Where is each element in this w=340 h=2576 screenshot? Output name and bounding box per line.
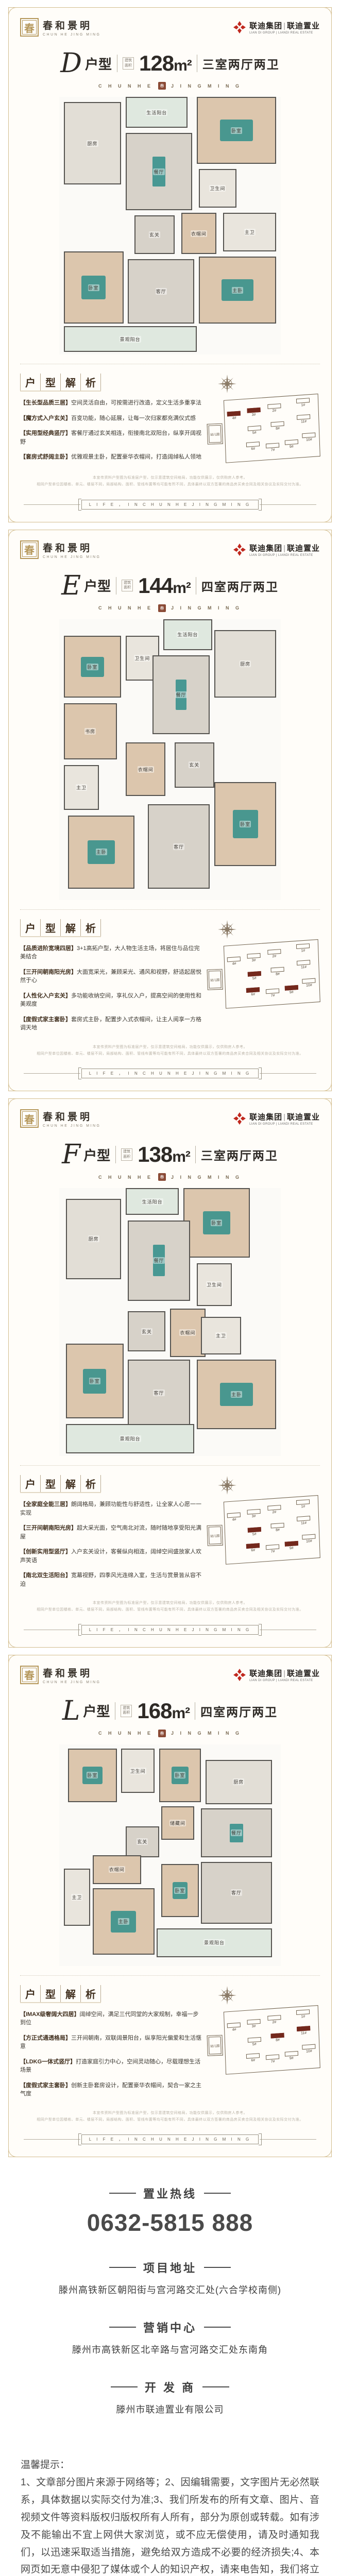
building-footprint xyxy=(227,411,241,416)
room-label: 餐厅 xyxy=(153,168,164,175)
analysis-title-char: 户 xyxy=(20,374,41,391)
building-footprint xyxy=(266,2054,279,2060)
floorplan-room: 玄关 xyxy=(128,1311,165,1351)
building-number: 6# xyxy=(251,2059,255,2063)
disclaimer-line: 本宣传资料户型图为标准层户型，仅示意建筑空间格局，功能仅供展示，仅供购房人参考。 xyxy=(20,1044,320,1050)
siteplan-building: 10# xyxy=(302,2044,316,2054)
building-number: 11# xyxy=(301,2031,307,2036)
floorplan-room: 储藏间 xyxy=(161,1806,195,1840)
floorplan-room: 主卧 xyxy=(93,1888,155,1955)
building-footprint xyxy=(246,1543,260,1549)
analysis-bullet: 方正式通透格局三开间朝南，双联阔景阳台，纵享阳光偏爱和生活惬意 xyxy=(20,2034,201,2051)
siteplan-building: 1# xyxy=(296,2009,310,2019)
building-number: 10# xyxy=(306,2049,312,2054)
area-label: 建筑面积 xyxy=(122,580,133,592)
brand-name: 春和景明 xyxy=(43,18,101,32)
floorplan-room: 衣帽间 xyxy=(181,213,217,254)
mini-seal-icon: 春 xyxy=(158,82,166,90)
analysis-title-char: 户 xyxy=(20,1475,41,1492)
room-label: 厨房 xyxy=(233,1778,244,1785)
building-footprint xyxy=(267,403,281,409)
building-number: 6# xyxy=(251,1549,255,1553)
analysis-bullet: 全家庭全能三居朗阔格局，兼顾功能性与舒适性，让全家人心愿一一实现 xyxy=(20,1500,201,1517)
siteplan-building: 2# xyxy=(267,1505,281,1515)
dash-ornament xyxy=(204,2267,231,2268)
building-number: 3# xyxy=(252,413,256,417)
building-number: 8# xyxy=(276,2038,280,2042)
room-label: 厨房 xyxy=(240,660,251,667)
project-address: 滕州高铁新区朝阳街与宫河路交汇处(六合学校南侧) xyxy=(0,2283,340,2296)
building-number: 4# xyxy=(232,416,236,420)
unit-title: D 户型 建筑面积 128m² 三室两厅两卫 xyxy=(20,50,320,77)
disclaimer-line: 相同户型单位因楼栋、单元、楼层不同，局部结构、面积、管线布置等均可能有所不同，具… xyxy=(20,1606,320,1613)
analysis-bullet: 南北双生活阳台宽幕视野，四季风光连绵入室，生活与赏景皆从容不迫 xyxy=(20,1571,201,1588)
analysis-bullet: 套房式舒阔主卧优雅观景主卧，配置豪华衣帽间，打造阔绰私人领地 xyxy=(20,453,201,462)
banner-line xyxy=(24,504,80,505)
building-footprint xyxy=(266,988,279,994)
siteplan-kindergarten: 幼儿园 xyxy=(207,423,223,445)
analysis-bullet: 三开间朝南阳光房超大采光面，空气南北对流，随时随地享受阳光满屋 xyxy=(20,1524,201,1541)
floorplan-room: 生活阳台 xyxy=(126,1188,179,1215)
unit-letter: F xyxy=(62,1141,80,1168)
subtitle-left: C H U N H E xyxy=(98,83,153,89)
building-number: 3# xyxy=(252,2024,256,2028)
building-number: 4# xyxy=(232,2028,236,2032)
card-header: 春 春和景明 CHUN HE JING MING 联迪集团|联迪置业 xyxy=(20,18,320,37)
liandi-flower-icon xyxy=(233,543,246,556)
building-number: 6# xyxy=(251,992,255,996)
unit-title: E 户型 建筑面积 144m² 四室两厅两卫 xyxy=(20,572,320,599)
analysis-title-char: 解 xyxy=(61,1475,81,1492)
brand-name-en: CHUN HE JING MING xyxy=(43,33,101,37)
building-footprint xyxy=(267,949,281,955)
siteplan-building: 3# xyxy=(247,2019,261,2029)
siteplan-building: 1# xyxy=(296,943,310,953)
room-label: 主卫 xyxy=(71,1894,82,1901)
room-label: 衣帽间 xyxy=(191,230,207,237)
building-footprint xyxy=(246,442,260,447)
building-number: 2# xyxy=(272,2021,276,2025)
room-label: 客厅 xyxy=(153,1389,164,1396)
room-label: 玄关 xyxy=(141,1328,152,1335)
analysis-title-char: 析 xyxy=(81,374,101,391)
floorplan-room: 餐厅 xyxy=(128,1221,190,1301)
room-label: 主卧 xyxy=(231,1391,242,1398)
floorplan: 厨房生活阳台卧室餐厅卫生间玄关衣帽间主卫卧室客厅主卧景观阳台 xyxy=(59,97,281,354)
title-divider xyxy=(115,1146,116,1163)
siteplan-building: 11# xyxy=(297,2026,311,2036)
brand-logo: 春 春和景明 CHUN HE JING MING xyxy=(20,540,101,559)
analysis-bullet: LDKG一体式竖厅打造家庭引力中心，空间灵动随心，尽载理想生活场景 xyxy=(20,2058,201,2075)
unit-title: L 户型 建筑面积 168m² 四室两厅两卫 xyxy=(20,1698,320,1724)
developer-names: 联迪集团|联迪置业 xyxy=(249,543,320,553)
disclaimer-line: 本宣传资料户型图为标准层户型，仅示意建筑空间格局，功能仅供展示，仅供购房人参考。 xyxy=(20,474,320,481)
analysis-section: 户型解析 全家庭全能三居朗阔格局，兼顾功能性与舒适性，让全家人心愿一一实现三开间… xyxy=(20,1465,320,1588)
siteplan-map: 4#3#2#1#5#8#11#6#7#9#10# 幼儿园 xyxy=(206,941,320,1011)
contact-section: 置业热线 0632-5815 888 项目地址 滕州高铁新区朝阳街与宫河路交汇处… xyxy=(0,2164,340,2444)
building-footprint xyxy=(267,1505,281,1511)
room-label: 卧室 xyxy=(87,664,98,670)
floorplan-room: 厨房 xyxy=(206,1760,272,1804)
room-label: 玄关 xyxy=(149,231,160,238)
brand-logo: 春 春和景明 CHUN HE JING MING xyxy=(20,1666,101,1684)
floorplan: 卧室卫生间卧室厨房储藏间餐厅玄关衣帽间主卫主卧卧室客厅景观阳台 xyxy=(59,1744,281,1966)
room-label: 主卧 xyxy=(232,287,243,294)
dash-ornament xyxy=(109,2327,136,2328)
floorplan-room: 玄关 xyxy=(134,215,174,254)
analysis-section: 户型解析 生长型品质三居空间灵活自由，可按需进行改造，定义生活多重享法魔方式入户… xyxy=(20,364,320,463)
siteplan-building: 5# xyxy=(247,426,261,435)
unit-card: 春 春和景明 CHUN HE JING MING 联迪集团|联迪置业 xyxy=(8,530,332,1092)
building-number: 7# xyxy=(271,1550,275,1554)
analysis-bullet: 生长型品质三居空间灵活自由，可按需进行改造，定义生活多重享法 xyxy=(20,399,201,408)
bullet-tag: 实用型经典竖厅 xyxy=(20,430,71,436)
siteplan-building: 9# xyxy=(284,439,298,449)
siteplan-building: 6# xyxy=(246,442,260,451)
floorplan-room: 生活阳台 xyxy=(163,619,212,650)
card-corner-ornament xyxy=(324,1655,332,1663)
banner-line xyxy=(24,1630,80,1630)
siteplan-building: 3# xyxy=(247,1509,261,1519)
brand-subtitle: C H U N H E 春 J I N G M I N G xyxy=(20,82,320,90)
siteplan-building: 1# xyxy=(296,1499,310,1509)
building-number: 5# xyxy=(252,2042,257,2046)
unit-layout: 四室两厅两卫 xyxy=(200,1702,278,1720)
floorplan-room: 景观阳台 xyxy=(66,1424,194,1453)
building-footprint xyxy=(246,987,260,993)
building-footprint xyxy=(266,1544,279,1550)
unit-card: 春 春和景明 CHUN HE JING MING 联迪集团|联迪置业 xyxy=(8,7,332,522)
siteplan-building: 11# xyxy=(297,415,311,425)
building-number: 11# xyxy=(301,1521,307,1526)
disclaimer-line: 本宣传资料户型图为标准层户型，仅示意建筑空间格局，功能仅供展示，仅供购房人参考。 xyxy=(20,1600,320,1606)
brand-logo: 春 春和景明 CHUN HE JING MING xyxy=(20,1109,101,1128)
brand-name-en: CHUN HE JING MING xyxy=(43,1681,101,1684)
building-footprint xyxy=(296,2009,310,2015)
siteplan-building: 2# xyxy=(267,949,281,959)
building-number: 2# xyxy=(272,955,276,959)
room-label: 卫生间 xyxy=(134,655,150,662)
analysis-bullet: 度假式家主套卧套房式主卧，配置步入式衣帽间，让主人阅享一方格调天地 xyxy=(20,1015,201,1032)
building-number: 11# xyxy=(301,965,307,970)
building-number: 7# xyxy=(271,448,275,452)
building-number: 9# xyxy=(290,445,294,449)
building-number: 7# xyxy=(271,2060,275,2064)
siteplan-building: 6# xyxy=(246,987,260,997)
analysis-title-char: 析 xyxy=(81,919,101,936)
banner-line xyxy=(260,504,316,505)
room-label: 主卫 xyxy=(76,784,87,791)
floorplan-room: 生活阳台 xyxy=(126,97,188,128)
siteplan-building: 11# xyxy=(297,960,311,970)
building-number: 1# xyxy=(301,1505,305,1509)
subtitle-right: J I N G M I N G xyxy=(171,83,242,89)
banner-text: L I F E ， I N C H U N H E J I N G M I N … xyxy=(81,1625,259,1635)
developer-name: 滕州市联迪置业有限公司 xyxy=(0,2402,340,2416)
siteplan-boundary: 4#3#2#1#5#8#11#6#7#9#10# xyxy=(224,394,320,463)
building-footprint xyxy=(296,943,310,949)
room-label: 卧室 xyxy=(174,1772,185,1778)
floorplan-room: 主卫 xyxy=(64,1869,91,1926)
building-footprint xyxy=(227,956,241,962)
card-corner-ornament xyxy=(8,1083,16,1091)
floorplan-room: 卫生间 xyxy=(121,1749,155,1793)
card-corner-ornament xyxy=(8,1655,16,1663)
building-footprint xyxy=(297,2026,310,2031)
building-number: 3# xyxy=(252,1515,256,1519)
analysis-bullet: 创新实用型竖厅入户玄关设计，客餐纵向相连，阔绰空间盛放家人欢声笑语 xyxy=(20,1548,201,1565)
building-number: 9# xyxy=(290,990,294,994)
analysis-bullets: 品质进阶宽境四居3+1高拓户型，大人物生活主场，将居住与品位完美结合三开间朝南阳… xyxy=(20,944,201,1032)
card-corner-ornament xyxy=(324,1098,332,1107)
card-header: 春 春和景明 CHUN HE JING MING 联迪集团|联迪置业 xyxy=(20,1109,320,1128)
siteplan-building: 1# xyxy=(296,398,310,408)
building-footprint xyxy=(271,421,284,427)
floorplan-room: 卧室 xyxy=(68,1749,117,1802)
subtitle-right: J I N G M I N G xyxy=(171,1175,242,1180)
card-corner-ornament xyxy=(8,1098,16,1107)
building-number: 4# xyxy=(232,961,236,965)
building-footprint xyxy=(284,439,298,445)
contact-title: 置业热线 xyxy=(143,2185,197,2201)
card-corner-ornament xyxy=(324,514,332,522)
siteplan-map: 4#3#2#1#5#8#11#6#7#9#10# 幼儿园 xyxy=(206,395,320,465)
dash-ornament xyxy=(204,2193,231,2194)
room-label: 储藏间 xyxy=(169,1820,186,1826)
card-corner-ornament xyxy=(324,2149,332,2157)
developer-logo: 联迪集团|联迪置业 LIAN DI GROUP | LIANDI REAL ES… xyxy=(233,543,320,557)
floorplan: 卧室卫生间生活阳台厨房餐厅书房衣帽间玄关主卫主卧客厅卧室 xyxy=(59,619,281,900)
siteplan-building: 5# xyxy=(247,971,261,980)
subtitle-right: J I N G M I N G xyxy=(171,605,242,611)
banner-line xyxy=(24,2139,80,2140)
card-corner-ornament xyxy=(8,514,16,522)
building-footprint xyxy=(297,415,310,420)
analysis-title: 户型解析 xyxy=(20,1985,101,2003)
room-label: 衣帽间 xyxy=(138,766,154,773)
room-label: 餐厅 xyxy=(231,1829,242,1836)
floorplan-room: 客厅 xyxy=(128,1360,190,1427)
unit-suffix: 户型 xyxy=(83,1701,110,1720)
title-divider xyxy=(115,1702,115,1720)
building-footprint xyxy=(267,2015,281,2021)
room-label: 主卫 xyxy=(244,229,256,235)
building-number: 10# xyxy=(306,984,312,988)
building-footprint xyxy=(247,426,261,431)
siteplan-building: 8# xyxy=(271,967,285,976)
bullet-tag: 三开间朝南阳光房 xyxy=(20,969,77,975)
floorplan-room: 卧室 xyxy=(64,251,124,324)
unit-layout: 三室两厅两卫 xyxy=(201,1146,278,1163)
building-footprint xyxy=(284,2051,298,2057)
sales-center-address: 滕州市高铁新区北辛路与宫河路交汇处东南角 xyxy=(0,2343,340,2356)
card-corner-ornament xyxy=(324,1639,332,1648)
room-label: 主卧 xyxy=(118,1918,129,1925)
siteplan-building: 10# xyxy=(302,433,316,443)
building-footprint xyxy=(247,2037,261,2042)
building-footprint xyxy=(266,443,279,448)
floorplan-room: 卧室 xyxy=(159,1749,201,1802)
disclaimer-line: 本宣传资料户型图为标准层户型，仅示意建筑空间格局，功能仅供展示，仅供购房人参考。 xyxy=(20,2110,320,2116)
compass-icon xyxy=(217,374,237,394)
building-number: 9# xyxy=(290,1547,294,1551)
bullet-tag: LDKG一体式竖厅 xyxy=(20,2059,76,2065)
building-footprint xyxy=(302,433,316,438)
contact-sales-center: 营销中心 滕州市高铁新区北辛路与宫河路交汇处东南角 xyxy=(0,2319,340,2356)
siteplan-building: 7# xyxy=(266,2054,280,2064)
plan-disclaimer: 本宣传资料户型图为标准层户型，仅示意建筑空间格局，功能仅供展示，仅供购房人参考。… xyxy=(20,1044,320,1058)
floorplan-room: 厨房 xyxy=(64,102,122,184)
card-corner-ornament xyxy=(324,1083,332,1091)
building-footprint xyxy=(302,1534,316,1540)
analysis-title-char: 户 xyxy=(20,919,41,936)
floorplan-room: 厨房 xyxy=(214,630,276,698)
siteplan-building: 2# xyxy=(267,403,281,413)
floorplan-room: 厨房 xyxy=(66,1199,122,1279)
banner-line xyxy=(260,1073,316,1074)
area-label: 建筑面积 xyxy=(121,1705,132,1717)
brand-subtitle: C H U N H E 春 J I N G M I N G xyxy=(20,604,320,612)
floorplan: 生活阳台厨房卧室餐厅卫生间玄关衣帽间主卫卧室客厅主卧景观阳台 xyxy=(59,1188,281,1456)
brand-subtitle: C H U N H E 春 J I N G M I N G xyxy=(20,1173,320,1181)
bullet-tag: IMAX级奢阔大四居 xyxy=(20,2011,80,2018)
card-corner-ornament xyxy=(8,2149,16,2157)
floorplan-room: 玄关 xyxy=(126,1826,159,1857)
analysis-section: 户型解析 品质进阶宽境四居3+1高拓户型，大人物生活主场，将居住与品位完美结合三… xyxy=(20,909,320,1032)
analysis-title: 户型解析 xyxy=(20,919,101,937)
banner-line xyxy=(24,1073,80,1074)
compass-icon xyxy=(217,1475,237,1496)
building-number: 1# xyxy=(301,403,305,408)
unit-title: F 户型 建筑面积 138m² 三室两厅两卫 xyxy=(20,1141,320,1168)
dash-ornament xyxy=(111,2386,138,2387)
bullet-tag: 套房式舒阔主卧 xyxy=(20,454,71,460)
analysis-title-char: 解 xyxy=(61,1985,81,2002)
analysis-title-char: 型 xyxy=(41,374,61,391)
siteplan-building: 6# xyxy=(246,1543,260,1553)
room-label: 景观阳台 xyxy=(120,336,141,343)
room-label: 卧室 xyxy=(87,1772,98,1778)
siteplan-building: 8# xyxy=(271,421,285,431)
building-footprint xyxy=(302,2044,316,2050)
building-number: 6# xyxy=(251,447,255,451)
room-label: 景观阳台 xyxy=(120,1435,141,1442)
area-label: 建筑面积 xyxy=(123,57,134,70)
analysis-title: 户型解析 xyxy=(20,374,101,392)
room-label: 卧室 xyxy=(231,127,242,134)
mini-seal-icon: 春 xyxy=(158,604,166,612)
siteplan-boundary: 4#3#2#1#5#8#11#6#7#9#10# xyxy=(224,1495,320,1565)
room-label: 主卧 xyxy=(96,849,107,855)
contact-title: 开 发 商 xyxy=(145,2379,195,2395)
analysis-title-char: 解 xyxy=(61,919,81,936)
unit-letter: L xyxy=(62,1698,80,1724)
banner-text: L I F E ， I N C H U N H E J I N G M I N … xyxy=(81,1069,259,1078)
siteplan-building: 9# xyxy=(284,1541,298,1551)
life-banner: L I F E ， I N C H U N H E J I N G M I N … xyxy=(20,1625,320,1635)
building-number: 5# xyxy=(252,431,257,435)
dash-ornament xyxy=(204,2327,231,2328)
analysis-bullet: 度假式家主套卧创新主卧套房设计，配置豪华衣帽间，契合一家之主气度 xyxy=(20,2081,201,2098)
siteplan-building: 10# xyxy=(302,978,316,988)
unit-area: 128m² xyxy=(139,51,192,76)
dash-ornament xyxy=(202,2386,229,2387)
siteplan-building: 4# xyxy=(227,2022,241,2032)
disclaimer-line: 相同户型单位因楼栋、单元、楼层不同，局部结构、面积、管线布置等均可能有所不同，具… xyxy=(20,1050,320,1057)
room-label: 主卫 xyxy=(215,1332,227,1339)
floorplan-room: 主卧 xyxy=(68,816,134,889)
bullet-tag: 度假式家主套卧 xyxy=(20,1016,71,1023)
analysis-title: 户型解析 xyxy=(20,1475,101,1493)
developer-names: 联迪集团|联迪置业 xyxy=(249,20,320,31)
bullet-tag: 人性化入户玄关 xyxy=(20,993,71,999)
plan-disclaimer: 本宣传资料户型图为标准层户型，仅示意建筑空间格局，功能仅供展示，仅供购房人参考。… xyxy=(20,2110,320,2124)
siteplan-building: 7# xyxy=(266,443,280,452)
unit-suffix: 户型 xyxy=(84,576,111,595)
bullet-tag: 三开间朝南阳光房 xyxy=(20,1525,77,1531)
room-label: 卫生间 xyxy=(209,185,226,192)
developer-names-en: LIAN DI GROUP | LIANDI REAL ESTATE xyxy=(249,1123,320,1126)
analysis-bullet: 实用型经典竖厅客餐厅通过玄关相连，衔接南北双阳台，纵享开阔视野 xyxy=(20,429,201,446)
floorplan-room: 书房 xyxy=(64,703,117,759)
building-number: 3# xyxy=(252,958,256,962)
analysis-title-char: 解 xyxy=(61,374,81,391)
building-footprint xyxy=(271,967,284,972)
bullet-text: 优雅观景主卧，配置豪华衣帽间，打造阔绰私人领地 xyxy=(71,454,201,460)
siteplan-building: 5# xyxy=(247,1527,261,1537)
room-label: 书房 xyxy=(84,728,96,735)
room-label: 玄关 xyxy=(137,1838,148,1845)
analysis-bullet: 品质进阶宽境四居3+1高拓户型，大人物生活主场，将居住与品位完美结合 xyxy=(20,944,201,961)
card-corner-ornament xyxy=(324,530,332,538)
room-label: 衣帽间 xyxy=(179,1329,196,1336)
floorplan-room: 玄关 xyxy=(175,742,214,787)
siteplan-building: 5# xyxy=(247,2037,261,2046)
floorplan-room: 主卧 xyxy=(199,257,277,324)
room-label: 餐厅 xyxy=(175,691,186,698)
siteplan-building: 4# xyxy=(227,411,241,420)
bullet-tag: 创新实用型竖厅 xyxy=(20,1549,71,1555)
brand-logo: 春 春和景明 CHUN HE JING MING xyxy=(20,18,101,37)
bullet-tag: 度假式家主套卧 xyxy=(20,2082,71,2089)
floorplan-room: 客厅 xyxy=(201,1862,272,1924)
floorplan-room: 景观阳台 xyxy=(157,1928,272,1957)
siteplan-building: 6# xyxy=(246,2053,260,2063)
unit-area: 138m² xyxy=(138,1142,190,1167)
building-footprint xyxy=(297,960,310,965)
siteplan-building: 4# xyxy=(227,956,241,966)
dash-ornament xyxy=(109,2267,136,2268)
room-label: 卫生间 xyxy=(206,1281,223,1288)
card-header: 春 春和景明 CHUN HE JING MING 联迪集团|联迪置业 xyxy=(20,540,320,559)
siteplan-building: 4# xyxy=(227,1512,241,1522)
analysis-title-char: 户 xyxy=(20,1985,41,2002)
developer-logo: 联迪集团|联迪置业 LIAN DI GROUP | LIANDI REAL ES… xyxy=(233,1668,320,1682)
unit-area: 168m² xyxy=(137,1699,190,1723)
liandi-flower-icon xyxy=(233,1668,246,1682)
floorplan-room: 衣帽间 xyxy=(170,1309,206,1357)
brand-name: 春和景明 xyxy=(43,1109,101,1123)
unit-layout: 三室两厅两卫 xyxy=(202,55,280,72)
bullet-tag: 南北双生活阳台 xyxy=(20,1572,71,1579)
tips-body: 1、文章部分图片来源于网络等；2、因编辑需要，文字图片无必然联系，具体数据以实际… xyxy=(21,2474,319,2576)
floorplan-room: 主卫 xyxy=(223,213,276,251)
building-footprint xyxy=(296,1499,310,1505)
room-label: 玄关 xyxy=(189,761,200,768)
floorplan-room: 客厅 xyxy=(128,259,194,324)
life-banner: L I F E ， I N C H U N H E J I N G M I N … xyxy=(20,2134,320,2144)
building-footprint xyxy=(247,1527,261,1533)
